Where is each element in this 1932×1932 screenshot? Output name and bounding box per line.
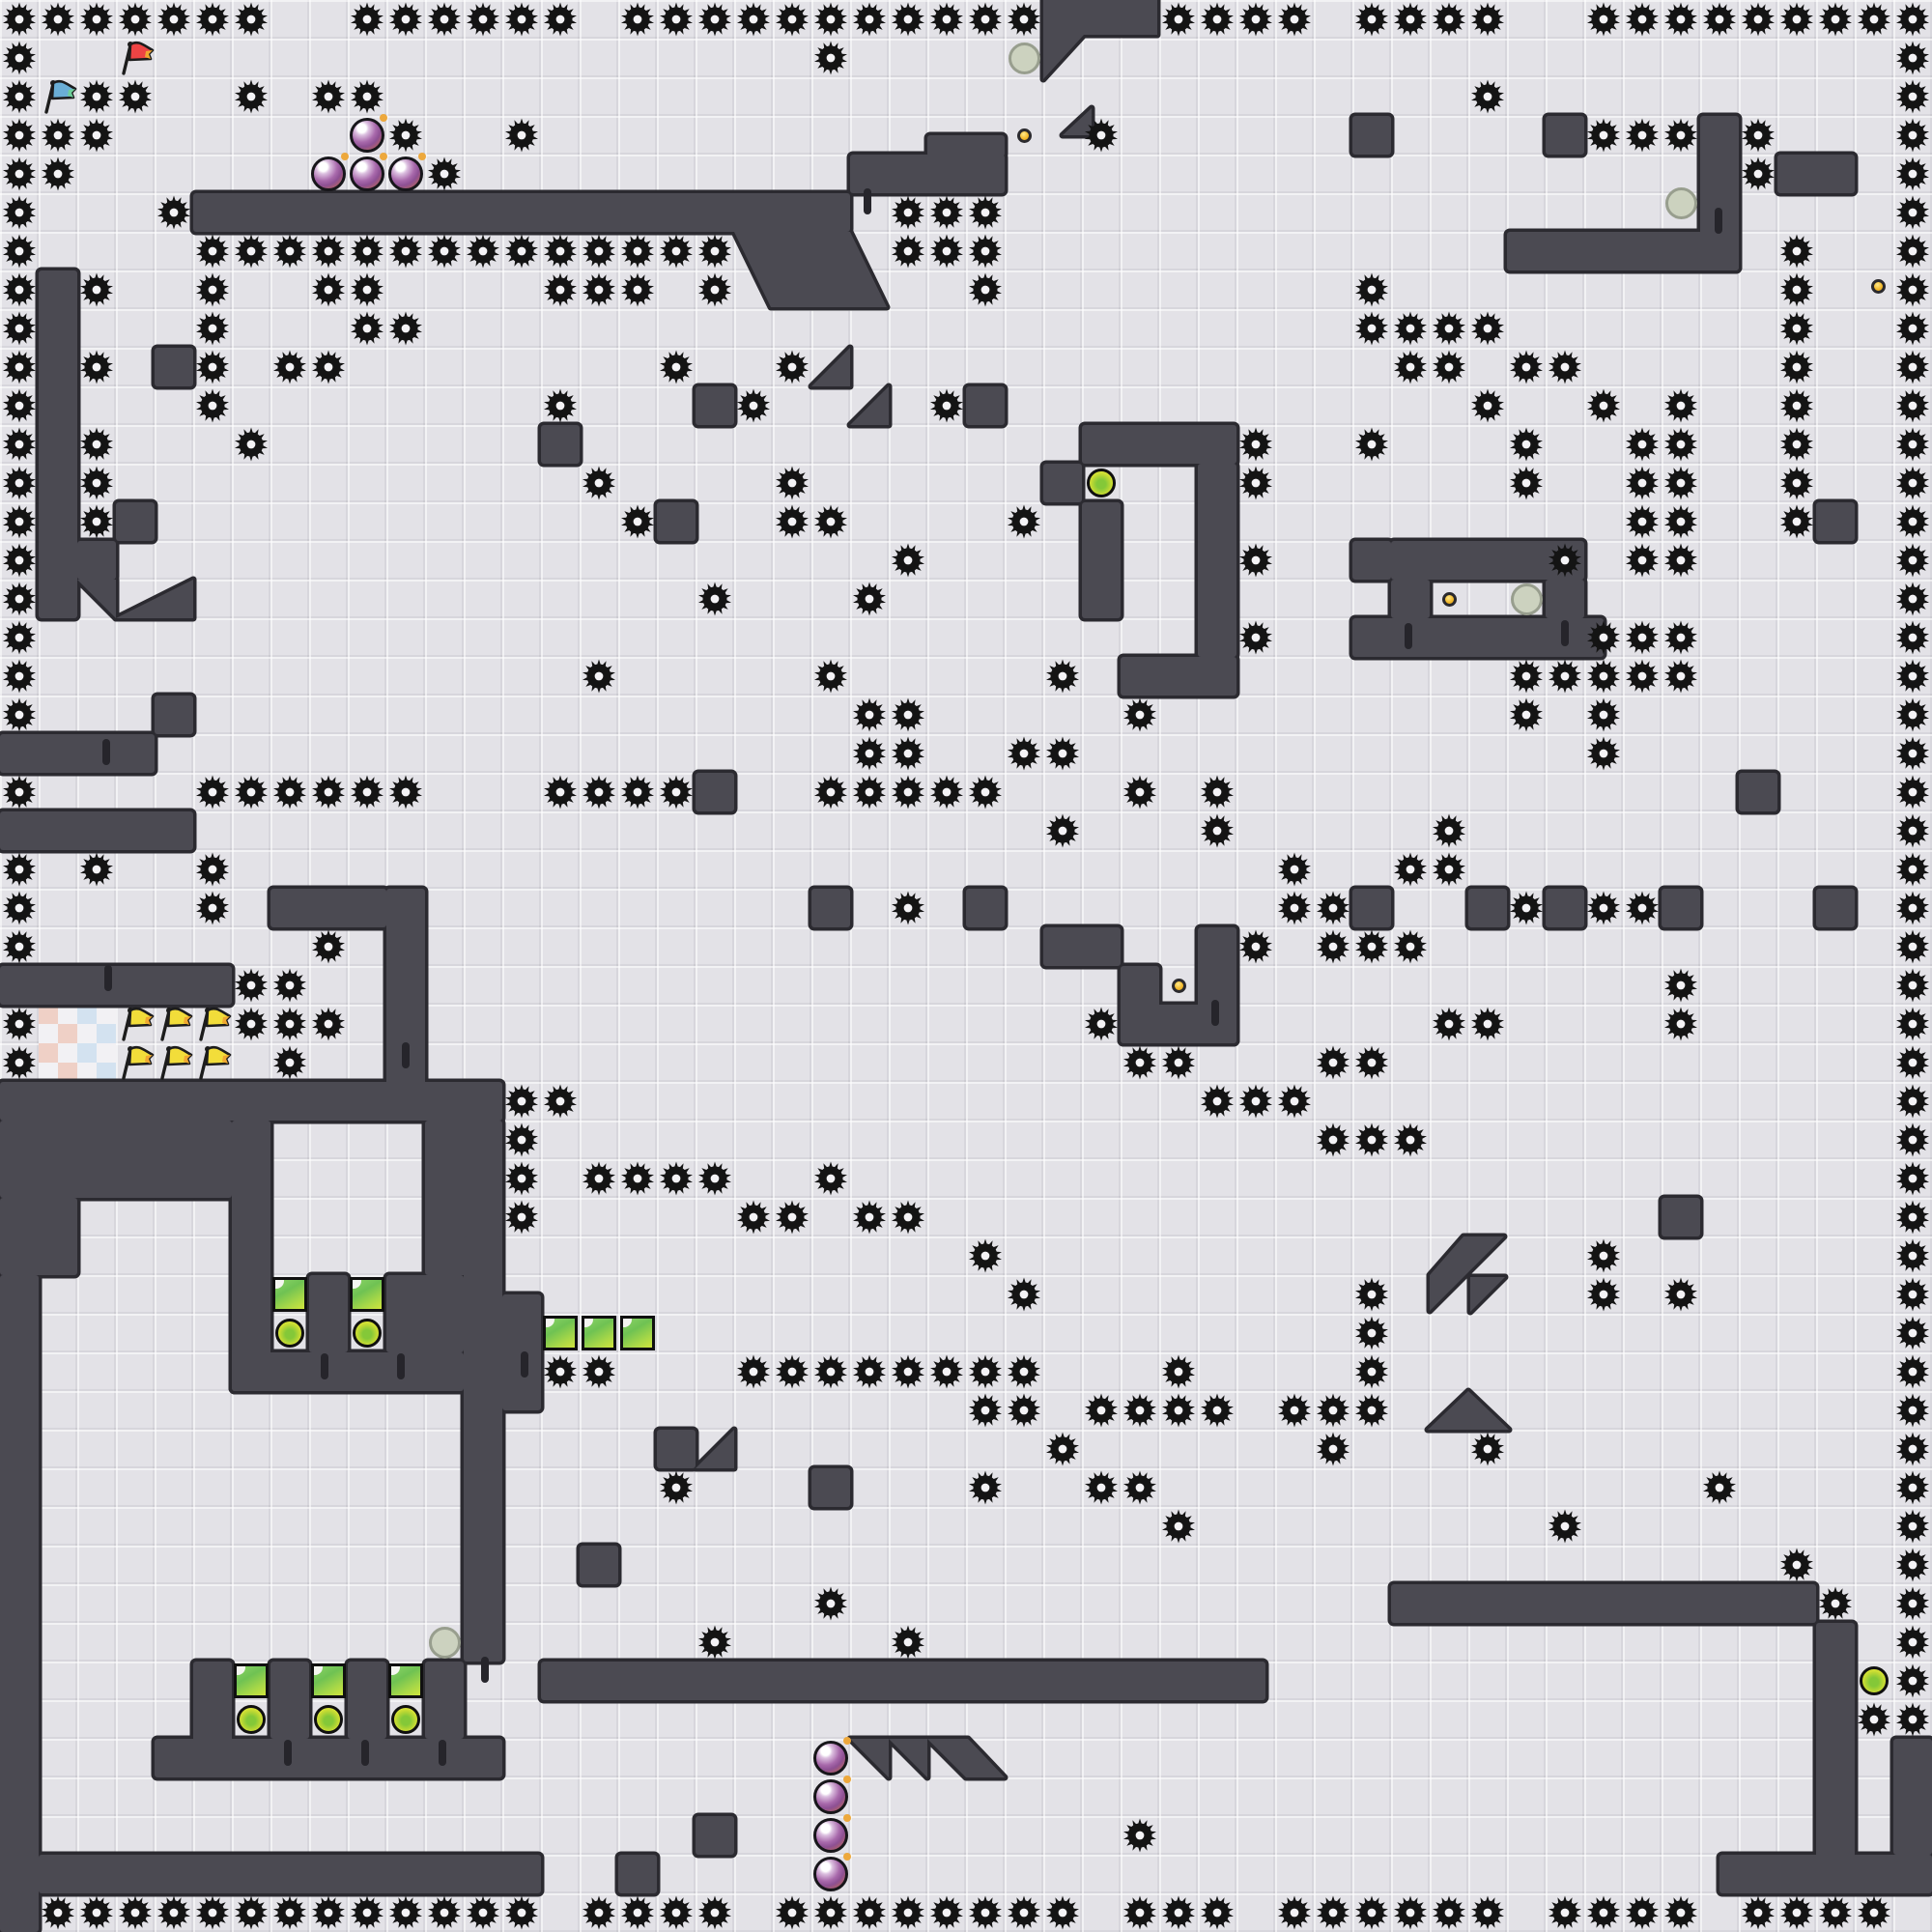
saw-hazard: [1547, 1894, 1583, 1931]
wall-block: [1043, 927, 1121, 966]
saw-hazard: [619, 233, 656, 270]
wall-block: [155, 348, 193, 386]
saw-hazard: [774, 349, 810, 385]
wall-ramp: [927, 1739, 1005, 1777]
saw-hazard: [890, 1353, 926, 1390]
saw-hazard: [1585, 658, 1622, 695]
saw-hazard: [271, 349, 308, 385]
saw-hazard: [1894, 967, 1931, 1004]
saw-hazard: [1, 78, 38, 115]
saw-hazard: [1315, 1431, 1351, 1467]
wall-block: [1546, 889, 1584, 927]
saw-hazard: [1, 503, 38, 540]
wall-block: [270, 1662, 309, 1739]
wall-block: [1739, 773, 1777, 811]
checker-square: [77, 1005, 97, 1024]
saw-hazard: [812, 40, 849, 76]
saw-hazard: [1276, 890, 1313, 926]
saw-hazard: [1894, 1624, 1931, 1661]
saw-hazard: [465, 1894, 501, 1931]
wall-block: [1082, 425, 1236, 464]
checker-square: [97, 1063, 116, 1082]
saw-hazard: [812, 1, 849, 38]
saw-hazard: [1, 928, 38, 965]
checker-square: [97, 1043, 116, 1063]
wall-ramp: [696, 1430, 734, 1468]
saw-hazard: [1662, 465, 1699, 501]
wall-ramp: [889, 1739, 927, 1777]
wall-block: [0, 966, 232, 1005]
saw-hazard: [812, 1894, 849, 1931]
saw-hazard: [542, 1353, 579, 1390]
wall-block: [811, 1468, 850, 1507]
door-marker: [284, 1740, 292, 1766]
saw-hazard: [696, 1160, 733, 1197]
saw-hazard: [1276, 1083, 1313, 1120]
saw-hazard: [1817, 1585, 1854, 1622]
saw-hazard: [271, 1044, 308, 1081]
saw-hazard: [1, 156, 38, 192]
yellow-flag: [155, 1041, 197, 1084]
saw-hazard: [1, 349, 38, 385]
wall-block: [0, 966, 232, 1005]
wall-block: [464, 1236, 502, 1662]
saw-hazard: [928, 1353, 965, 1390]
wall-block: [270, 1662, 309, 1739]
saw-hazard: [1, 387, 38, 424]
saw-hazard: [1894, 658, 1931, 695]
wall-ramp: [77, 580, 116, 618]
wall-block: [1352, 541, 1391, 580]
wall-block: [1352, 889, 1391, 927]
saw-hazard: [1508, 890, 1545, 926]
saw-hazard: [1778, 1547, 1815, 1583]
wall-ramp: [850, 1739, 889, 1777]
saw-hazard: [271, 967, 308, 1004]
saw-hazard: [310, 1006, 347, 1042]
wall-block: [1352, 889, 1391, 927]
door-marker: [1405, 623, 1412, 649]
door-marker: [397, 1353, 405, 1379]
saw-hazard: [1392, 1894, 1429, 1931]
saw-hazard: [1894, 1044, 1931, 1081]
saw-hazard: [774, 1199, 810, 1236]
saw-hazard: [658, 349, 695, 385]
saw-hazard: [812, 774, 849, 810]
gold-coin: [1871, 279, 1886, 294]
saw-hazard: [1894, 1, 1931, 38]
saw-hazard: [1624, 117, 1661, 154]
saw-hazard: [1353, 1392, 1390, 1429]
saw-hazard: [1392, 851, 1429, 888]
saw-hazard: [890, 1624, 926, 1661]
saw-hazard: [1237, 542, 1274, 579]
yellow-flag: [193, 1003, 236, 1045]
wall-block: [1391, 1584, 1816, 1623]
wall-block: [1121, 657, 1236, 696]
wall-block: [1662, 1198, 1700, 1236]
saw-hazard: [1894, 1353, 1931, 1390]
saw-hazard: [1894, 1276, 1931, 1313]
door-marker: [1715, 208, 1722, 234]
power-orb: [237, 1705, 266, 1734]
saw-hazard: [619, 1, 656, 38]
saw-hazard: [890, 735, 926, 772]
power-orb: [353, 1319, 382, 1348]
saw-hazard: [1006, 503, 1042, 540]
green-box: [543, 1316, 578, 1350]
saw-hazard: [1894, 194, 1931, 231]
wall-ramp: [734, 232, 887, 307]
saw-hazard: [1740, 117, 1776, 154]
green-box: [620, 1316, 655, 1350]
saw-hazard: [78, 851, 115, 888]
checker-square: [39, 1024, 58, 1043]
saw-hazard: [1, 696, 38, 733]
wall-block: [580, 1546, 618, 1584]
saw-hazard: [387, 1894, 424, 1931]
wall-ramp: [811, 348, 850, 386]
wall-block: [657, 502, 696, 541]
saw-hazard: [851, 735, 888, 772]
saw-hazard: [78, 271, 115, 308]
saw-hazard: [1894, 271, 1931, 308]
saw-hazard: [194, 851, 231, 888]
wall-block: [1816, 1623, 1855, 1893]
saw-hazard: [1315, 1044, 1351, 1081]
door-marker: [104, 965, 112, 991]
saw-hazard: [426, 156, 463, 192]
saw-hazard: [1894, 696, 1931, 733]
wall-block: [1816, 502, 1855, 541]
saw-hazard: [310, 349, 347, 385]
saw-hazard: [1469, 1, 1506, 38]
saw-hazard: [1894, 117, 1931, 154]
saw-hazard: [1469, 1894, 1506, 1931]
saw-hazard: [1044, 658, 1081, 695]
saw-hazard: [1547, 349, 1583, 385]
saw-hazard: [1585, 619, 1622, 656]
saw-hazard: [696, 1894, 733, 1931]
saw-hazard: [1006, 1894, 1042, 1931]
saw-hazard: [1894, 1083, 1931, 1120]
saw-hazard: [1894, 1431, 1931, 1467]
yellow-flag: [193, 1041, 236, 1084]
wall-block: [1352, 116, 1391, 155]
saw-hazard: [1624, 890, 1661, 926]
saw-hazard: [967, 1, 1004, 38]
saw-hazard: [1, 890, 38, 926]
saw-hazard: [1894, 1392, 1931, 1429]
wall-block: [1816, 502, 1855, 541]
saw-hazard: [117, 78, 154, 115]
saw-hazard: [78, 78, 115, 115]
gray-orb: [1511, 583, 1543, 615]
wall-block: [1546, 116, 1584, 155]
saw-hazard: [194, 1894, 231, 1931]
saw-hazard: [387, 233, 424, 270]
wall-block: [425, 1662, 464, 1739]
wall-ramp: [696, 1430, 734, 1468]
saw-hazard: [581, 1160, 617, 1197]
wall-ramp: [77, 580, 116, 618]
saw-hazard: [696, 581, 733, 617]
saw-hazard: [851, 1894, 888, 1931]
wall-block: [1719, 1855, 1932, 1893]
saw-hazard: [349, 233, 385, 270]
saw-hazard: [928, 774, 965, 810]
saw-hazard: [658, 233, 695, 270]
wall-block: [386, 889, 425, 1121]
saw-hazard: [1, 1, 38, 38]
wall-ramp: [1043, 0, 1157, 79]
wall-block: [193, 1662, 232, 1777]
saw-hazard: [194, 271, 231, 308]
wall-block: [541, 425, 580, 464]
saw-hazard: [310, 271, 347, 308]
door-marker: [521, 1351, 528, 1378]
checker-square: [39, 1063, 58, 1082]
saw-hazard: [1, 619, 38, 656]
wall-ramp: [1430, 1236, 1504, 1311]
wall-block: [0, 1082, 502, 1121]
saw-hazard: [1353, 928, 1390, 965]
bomb: [813, 1741, 848, 1776]
saw-hazard: [581, 774, 617, 810]
saw-hazard: [503, 1083, 540, 1120]
wall-block: [39, 270, 77, 618]
saw-hazard: [1353, 1122, 1390, 1158]
saw-hazard: [78, 1894, 115, 1931]
green-box: [311, 1663, 346, 1698]
wall-block: [270, 889, 386, 927]
saw-hazard: [774, 1353, 810, 1390]
power-orb: [391, 1705, 420, 1734]
wall-block: [1198, 464, 1236, 657]
saw-hazard: [1353, 1044, 1390, 1081]
saw-hazard: [890, 890, 926, 926]
gold-coin: [1442, 592, 1457, 607]
wall-block: [464, 1236, 502, 1662]
game-level-board[interactable]: [0, 0, 1932, 1932]
saw-hazard: [542, 774, 579, 810]
wall-block: [1121, 1005, 1236, 1043]
saw-hazard: [1508, 658, 1545, 695]
checker-square: [58, 1063, 77, 1082]
bomb: [311, 156, 346, 191]
saw-hazard: [1585, 1894, 1622, 1931]
saw-hazard: [1, 465, 38, 501]
wall-block: [696, 773, 734, 811]
saw-hazard: [426, 1, 463, 38]
saw-hazard: [851, 1, 888, 38]
saw-hazard: [658, 1894, 695, 1931]
wall-block: [348, 1662, 386, 1739]
saw-hazard: [1083, 1006, 1120, 1042]
saw-hazard: [1, 542, 38, 579]
saw-hazard: [349, 310, 385, 347]
wall-block: [1121, 966, 1159, 1043]
saw-hazard: [890, 696, 926, 733]
saw-hazard: [1353, 1353, 1390, 1390]
saw-hazard: [967, 774, 1004, 810]
saw-hazard: [967, 233, 1004, 270]
saw-hazard: [233, 1, 270, 38]
saw-hazard: [465, 233, 501, 270]
saw-hazard: [1, 233, 38, 270]
wall-block: [1468, 541, 1507, 580]
wall-block: [348, 1662, 386, 1739]
saw-hazard: [928, 194, 965, 231]
saw-hazard: [1044, 812, 1081, 849]
saw-hazard: [1199, 1894, 1236, 1931]
yellow-flag: [116, 1003, 158, 1045]
wall-ramp: [811, 348, 850, 386]
saw-hazard: [1624, 658, 1661, 695]
saw-hazard: [233, 967, 270, 1004]
saw-hazard: [581, 1894, 617, 1931]
saw-hazard: [349, 271, 385, 308]
power-orb: [1087, 469, 1116, 497]
saw-hazard: [1624, 1894, 1661, 1931]
wall-ramp: [850, 386, 889, 425]
saw-hazard: [1624, 542, 1661, 579]
saw-hazard: [542, 1083, 579, 1120]
saw-hazard: [1237, 1083, 1274, 1120]
saw-hazard: [1199, 1, 1236, 38]
saw-hazard: [271, 774, 308, 810]
saw-hazard: [1122, 774, 1158, 810]
wall-block: [39, 1855, 541, 1893]
gold-coin: [1017, 128, 1032, 143]
saw-hazard: [1624, 619, 1661, 656]
wall-block: [77, 541, 116, 580]
saw-hazard: [928, 233, 965, 270]
saw-hazard: [1624, 1, 1661, 38]
saw-hazard: [194, 233, 231, 270]
saw-hazard: [1392, 310, 1429, 347]
wall-block: [0, 1275, 39, 1932]
checker-square: [39, 1005, 58, 1024]
saw-hazard: [1894, 1006, 1931, 1042]
wall-block: [1082, 502, 1121, 618]
wall-block: [966, 889, 1005, 927]
gold-coin: [1172, 979, 1186, 993]
bomb: [813, 1818, 848, 1853]
saw-hazard: [1894, 310, 1931, 347]
saw-hazard: [1894, 1122, 1931, 1158]
saw-hazard: [967, 1353, 1004, 1390]
wall-ramp: [1428, 1391, 1509, 1430]
saw-hazard: [735, 1, 772, 38]
saw-hazard: [1585, 735, 1622, 772]
saw-hazard: [1431, 1006, 1467, 1042]
saw-hazard: [928, 387, 965, 424]
saw-hazard: [1894, 619, 1931, 656]
wall-block: [0, 1275, 39, 1932]
wall-block: [1507, 232, 1739, 270]
saw-hazard: [233, 78, 270, 115]
saw-hazard: [890, 542, 926, 579]
saw-hazard: [503, 1160, 540, 1197]
wall-block: [77, 541, 116, 580]
wall-block: [1662, 1198, 1700, 1236]
wall-block: [425, 1121, 502, 1275]
saw-hazard: [1894, 1237, 1931, 1274]
saw-hazard: [1778, 465, 1815, 501]
saw-hazard: [542, 233, 579, 270]
wall-block: [696, 1816, 734, 1855]
blue-flag: [39, 75, 81, 118]
wall-block: [927, 135, 1005, 156]
wall-block: [232, 1121, 270, 1391]
saw-hazard: [967, 1894, 1004, 1931]
saw-hazard: [1894, 928, 1931, 965]
green-box: [234, 1663, 269, 1698]
saw-hazard: [1392, 928, 1429, 965]
saw-hazard: [542, 1, 579, 38]
saw-hazard: [78, 465, 115, 501]
saw-hazard: [1894, 40, 1931, 76]
door-marker: [1561, 620, 1569, 646]
gray-orb: [1665, 187, 1697, 219]
bomb: [350, 156, 384, 191]
saw-hazard: [696, 271, 733, 308]
saw-hazard: [1160, 1, 1197, 38]
wall-block: [1546, 889, 1584, 927]
saw-hazard: [1006, 1392, 1042, 1429]
saw-hazard: [1315, 1392, 1351, 1429]
saw-hazard: [1, 1044, 38, 1081]
wall-block: [618, 1855, 657, 1893]
wall-block: [618, 1855, 657, 1893]
saw-hazard: [1122, 1469, 1158, 1506]
power-orb: [314, 1705, 343, 1734]
saw-hazard: [1856, 1, 1892, 38]
saw-hazard: [1276, 851, 1313, 888]
wall-block: [657, 1430, 696, 1468]
saw-hazard: [233, 1006, 270, 1042]
wall-block: [155, 1739, 502, 1777]
saw-hazard: [851, 774, 888, 810]
wall-block: [155, 696, 193, 734]
saw-hazard: [271, 1006, 308, 1042]
saw-hazard: [1894, 1701, 1931, 1738]
wall-block: [541, 1662, 1265, 1700]
wall-block: [1121, 657, 1236, 696]
saw-hazard: [967, 271, 1004, 308]
saw-hazard: [1353, 426, 1390, 463]
saw-hazard: [774, 1, 810, 38]
saw-hazard: [619, 774, 656, 810]
door-marker: [102, 739, 110, 765]
saw-hazard: [1, 310, 38, 347]
saw-hazard: [890, 1894, 926, 1931]
wall-block: [193, 193, 850, 232]
wall-block: [232, 1121, 270, 1391]
saw-hazard: [1778, 1894, 1815, 1931]
door-marker: [439, 1740, 446, 1766]
saw-hazard: [851, 696, 888, 733]
saw-hazard: [349, 1894, 385, 1931]
saw-hazard: [1431, 812, 1467, 849]
saw-hazard: [658, 774, 695, 810]
saw-hazard: [1662, 619, 1699, 656]
saw-hazard: [1894, 78, 1931, 115]
saw-hazard: [1856, 1701, 1892, 1738]
saw-hazard: [1778, 1, 1815, 38]
saw-hazard: [658, 1469, 695, 1506]
